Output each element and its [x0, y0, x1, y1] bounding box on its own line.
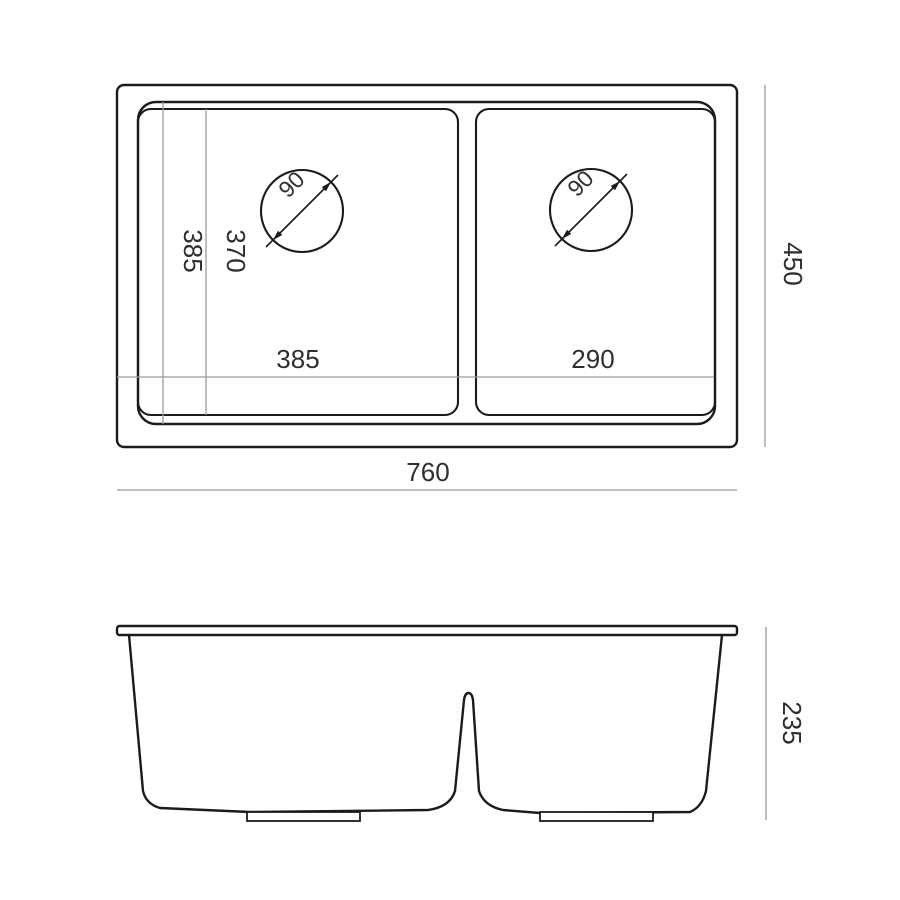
dim-label-overall-depth: 450 [778, 242, 808, 285]
right-drain: 90 [550, 165, 632, 251]
top-view: 90 90 385 290 385 370 450 760 [117, 85, 808, 490]
front-rim-outline [117, 626, 737, 635]
dim-label-left-bowl-depth: 385 [178, 229, 208, 272]
left-bottom-pad [247, 812, 360, 821]
dim-label-height: 235 [777, 701, 807, 744]
dim-label-overall-width: 760 [406, 457, 449, 487]
right-bottom-pad [540, 812, 653, 821]
right-drain-diameter-label: 90 [562, 165, 598, 201]
front-view: 235 [117, 626, 807, 821]
sink-technical-drawing: 90 90 385 290 385 370 450 760 [0, 0, 900, 900]
left-drain-diameter-label: 90 [273, 166, 309, 202]
drawing-canvas: 90 90 385 290 385 370 450 760 [0, 0, 900, 900]
outer-rim-outline [117, 85, 737, 447]
left-drain: 90 [261, 166, 343, 252]
dim-label-right-bowl-width: 290 [571, 344, 614, 374]
front-body-outline [129, 635, 722, 813]
dim-label-inner-depth: 370 [221, 229, 251, 272]
dim-label-left-bowl-width: 385 [276, 344, 319, 374]
